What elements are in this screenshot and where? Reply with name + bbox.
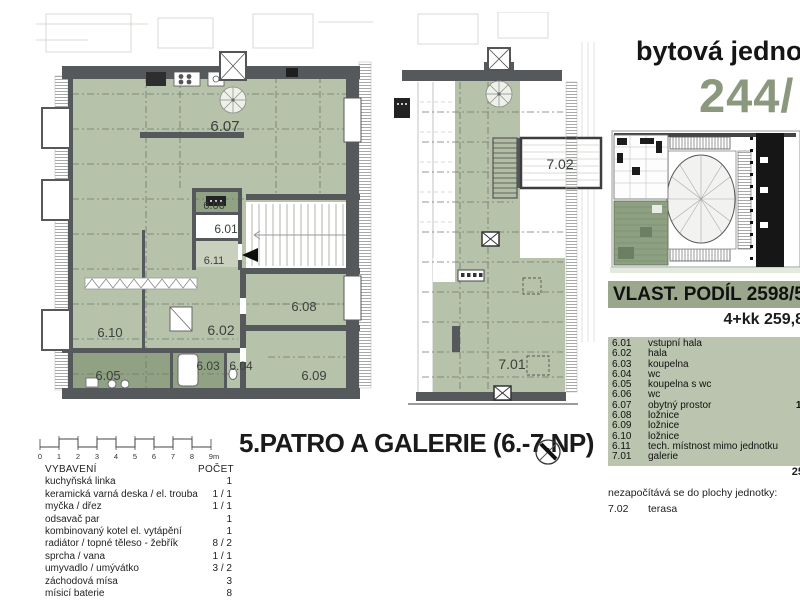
room-label-6-10: 6.10 [97, 325, 122, 340]
table-row: 6.07obytný prostor10 [608, 401, 800, 411]
equipment-count: 1 / 1 [198, 501, 232, 513]
equipment-row: záchodová mísa3 [45, 576, 232, 588]
room-label-6-06: 6.06 [203, 200, 224, 212]
room-list-table: 6.01vstupní hala 6.02hala 6.03koupelna 6… [608, 337, 800, 466]
equipment-count: 3 [198, 576, 232, 588]
scale-labels: 0 1 2 3 4 5 6 7 8 9m [38, 452, 219, 460]
equipment-count: 1 / 1 [198, 489, 232, 501]
room-label-6-05: 6.05 [95, 368, 120, 383]
table-row: 6.09ložnice1 [608, 421, 800, 431]
equipment-row: sprcha / vana1 / 1 [45, 551, 232, 563]
scale-label: 8 [190, 452, 194, 460]
disposition-area: 4+kk 259,8 [608, 311, 800, 329]
equipment-name: keramická varná deska / el. trouba [45, 489, 198, 501]
ghost-context-lines [36, 14, 373, 52]
equipment-row: mísicí baterie8 [45, 588, 232, 600]
ownership-share-bar: VLAST. PODÍL 2598/585 [608, 281, 800, 308]
equipment-count: 8 / 2 [198, 538, 232, 550]
equipment-row: radiátor / topné těleso - žebřík8 / 2 [45, 538, 232, 550]
equipment-row: myčka / dřez1 / 1 [45, 501, 232, 513]
equipment-row: keramická varná deska / el. trouba1 / 1 [45, 489, 232, 501]
railing-band [85, 278, 197, 289]
scale-label: 5 [133, 452, 137, 460]
equipment-row: umyvadlo / umývátko3 / 2 [45, 563, 232, 575]
room-label-7-02: 7.02 [546, 156, 573, 172]
equipment-name: myčka / dřez [45, 501, 198, 513]
area-total: 25 [608, 466, 800, 478]
table-row: 6.05koupelna s wc [608, 380, 800, 390]
building-location-minimap [610, 127, 800, 273]
room-label-6-02: 6.02 [207, 322, 234, 338]
scale-label: 2 [76, 452, 80, 460]
table-row: 6.03koupelna [608, 360, 800, 370]
equipment-title: VYBAVENÍ [45, 464, 198, 476]
main-floorplan-5th-floor: 6.07 6.06 6.01 6.11 6.10 6.02 6.05 6.03 … [28, 12, 378, 432]
facade-hatch-right [566, 82, 577, 392]
table-row: 6.02hala [608, 349, 800, 359]
north-orientation-icon [532, 436, 564, 468]
equipment-row: kuchyňská linka1 [45, 476, 232, 488]
scale-bar: 0 1 2 3 4 5 6 7 8 9m [36, 432, 236, 460]
room-label-6-04: 6.04 [229, 359, 253, 373]
equipment-count: 1 [198, 514, 232, 526]
equipment-row: odsavač par1 [45, 514, 232, 526]
equipment-count: 8 [198, 588, 232, 600]
gallery-staircase [493, 138, 517, 198]
room-label-6-11: 6.11 [204, 255, 225, 267]
room-id: 7.02 [608, 503, 648, 515]
equipment-row: kombinovaný kotel el. vytápění1 [45, 526, 232, 538]
equipment-count: 1 / 1 [198, 551, 232, 563]
equipment-name: odsavač par [45, 514, 198, 526]
stair-strip [738, 151, 751, 249]
spiral-stair [220, 87, 246, 113]
scale-label: 4 [114, 452, 118, 460]
scale-label: 3 [95, 452, 99, 460]
equipment-name: sprcha / vana [45, 551, 198, 563]
spiral-stair [486, 81, 512, 107]
room-label-7-01: 7.01 [498, 356, 525, 372]
equipment-table: VYBAVENÍ POČET kuchyňská linka1 keramick… [45, 464, 232, 600]
room-area: 10 [796, 401, 800, 411]
room-label-6-03: 6.03 [196, 359, 220, 373]
scale-label: 6 [152, 452, 156, 460]
scale-label: 1 [57, 452, 61, 460]
table-row: 6.01vstupní hala [608, 339, 800, 349]
room-id: 7.01 [608, 452, 648, 462]
elevator-shaft-icon [488, 48, 510, 70]
equipment-name: záchodová mísa [45, 576, 198, 588]
tint-strip [610, 267, 800, 273]
highlighted-unit-area [614, 201, 668, 265]
table-row: 6.11tech. místnost mimo jednotku [608, 442, 800, 452]
left-upper-wing [614, 135, 668, 199]
scale-label: 0 [38, 452, 42, 460]
excluded-row: 7.02 terasa [608, 503, 800, 515]
equipment-name: radiátor / topné těleso - žebřík [45, 538, 198, 550]
equipment-count: 3 / 2 [198, 563, 232, 575]
scale-label: 9m [209, 452, 219, 460]
equipment-header: VYBAVENÍ POČET [45, 464, 232, 476]
count-header: POČET [198, 464, 232, 476]
equipment-name: kombinovaný kotel el. vytápění [45, 526, 198, 538]
room-name: koupelna [648, 360, 800, 370]
equipment-name: umyvadlo / umývátko [45, 563, 198, 575]
excluded-note: nezapočítává se do plochy jednotky: [608, 487, 777, 499]
table-row: 6.08ložnice1 [608, 411, 800, 421]
equipment-name: kuchyňská linka [45, 476, 198, 488]
oval-atrium [667, 155, 735, 243]
room-name: koupelna s wc [648, 380, 800, 390]
room-label-6-08: 6.08 [291, 299, 316, 314]
elevator-shaft-icon [220, 52, 246, 80]
room-label-6-09: 6.09 [301, 368, 326, 383]
room-label-6-01: 6.01 [214, 222, 238, 236]
floorplan-sheet: { "header": { "title": "bytová jednotk",… [0, 0, 800, 600]
scale-label: 7 [171, 452, 175, 460]
room-name: vstupní hala [648, 339, 800, 349]
room-name: terasa [648, 503, 800, 515]
table-row: 7.01galerie7 [608, 452, 800, 462]
equipment-count: 1 [198, 476, 232, 488]
room-label-6-07: 6.07 [210, 118, 239, 135]
equipment-count: 1 [198, 526, 232, 538]
equipment-name: mísicí baterie [45, 588, 198, 600]
sheet-title: bytová jednotk [636, 36, 800, 67]
room-name: galerie [648, 452, 800, 462]
kitchen-fixtures [146, 72, 224, 86]
gallery-floorplan: 7.02 7.01 [388, 12, 603, 432]
unit-number: 244/ [699, 68, 794, 123]
slab-line [408, 403, 578, 405]
